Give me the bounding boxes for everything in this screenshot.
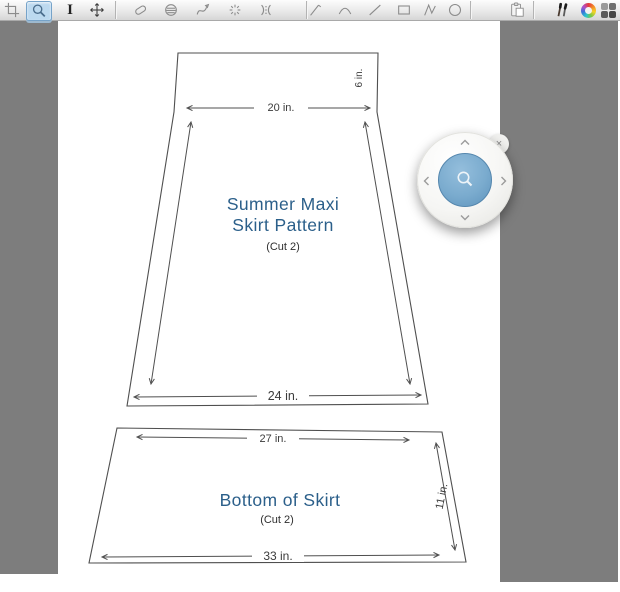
brushes-icon — [554, 2, 570, 18]
pencil-icon — [307, 2, 323, 18]
toolbar-separator — [115, 1, 116, 19]
dimension-label-side-skirt: 6 in. — [354, 69, 365, 88]
polyline-icon — [422, 2, 438, 18]
magnifier-glass-icon — [452, 167, 478, 193]
dimension-label-top-skirt: 20 in. — [268, 102, 295, 114]
eraser-tool-button[interactable] — [128, 1, 152, 19]
zoom-tool-button[interactable] — [26, 1, 52, 21]
toolbar: I — [0, 0, 620, 21]
polyline-tool-button[interactable] — [418, 1, 442, 19]
brushes-tool-button[interactable] — [550, 1, 574, 19]
crop-icon — [4, 2, 20, 18]
arc-tool-button[interactable] — [333, 1, 357, 19]
pan-right-button[interactable] — [500, 176, 507, 186]
arc-icon — [337, 2, 353, 18]
stamp-icon — [163, 2, 179, 18]
eraser-icon — [132, 2, 148, 18]
trim-marks-icon — [258, 2, 274, 18]
piece-cut-note: (Cut 2) — [266, 241, 300, 253]
palette-button[interactable] — [596, 1, 620, 19]
dimension-label-bottom-skirt: 24 in. — [268, 389, 299, 403]
chevron-down-icon — [461, 216, 469, 220]
zoom-icon — [31, 3, 47, 19]
pencil-tool-button[interactable] — [303, 1, 327, 19]
dimension-label-side-bottom-piece: 11 in. — [434, 482, 451, 510]
stamp-tool-button[interactable] — [159, 1, 183, 19]
chevron-right-icon — [502, 177, 506, 185]
dimension-label-bottom-bottom-piece: 33 in. — [263, 549, 292, 563]
move-icon — [89, 2, 105, 18]
rectangle-icon — [396, 2, 412, 18]
line-icon — [367, 2, 383, 18]
magnifier-widget: × — [417, 132, 513, 228]
pan-left-button[interactable] — [423, 176, 430, 186]
bottom-piece-cut-note: (Cut 2) — [260, 514, 294, 526]
ellipse-icon — [447, 2, 463, 18]
magnifier-zoom-button[interactable] — [438, 153, 492, 207]
move-tool-button[interactable] — [85, 1, 109, 19]
chevron-left-icon — [425, 177, 429, 185]
scatter-icon — [227, 2, 243, 18]
scatter-tool-button[interactable] — [223, 1, 247, 19]
canvas-pattern-drawing[interactable]: 20 in. 6 in. Summer Maxi Skirt Pattern (… — [0, 0, 620, 592]
dimension-label-top-bottom-piece: 27 in. — [260, 433, 287, 445]
text-tool-icon: I — [67, 3, 73, 18]
line-tool-button[interactable] — [363, 1, 387, 19]
pan-down-button[interactable] — [460, 214, 470, 221]
color-wheel-icon — [581, 3, 596, 18]
curve-pen-tool-button[interactable] — [191, 1, 215, 19]
curve-pen-icon — [195, 2, 211, 18]
bottom-piece-title: Bottom of Skirt — [220, 490, 341, 510]
piece-title-line2: Skirt Pattern — [232, 215, 333, 235]
chevron-up-icon — [461, 141, 469, 145]
toolbar-separator — [533, 1, 534, 19]
grainline-arrow-left — [151, 122, 191, 384]
ellipse-tool-button[interactable] — [443, 1, 467, 19]
text-tool-button[interactable]: I — [58, 1, 82, 19]
rectangle-tool-button[interactable] — [392, 1, 416, 19]
grainline-arrow-right — [365, 122, 410, 384]
pan-up-button[interactable] — [460, 139, 470, 146]
palette-icon — [601, 3, 616, 18]
toolbar-separator — [470, 1, 471, 19]
crop-tool-button[interactable] — [0, 1, 24, 19]
piece-title-line1: Summer Maxi — [227, 194, 339, 214]
trim-marks-tool-button[interactable] — [254, 1, 278, 19]
paste-tool-button[interactable] — [505, 1, 529, 19]
paste-icon — [509, 2, 525, 18]
